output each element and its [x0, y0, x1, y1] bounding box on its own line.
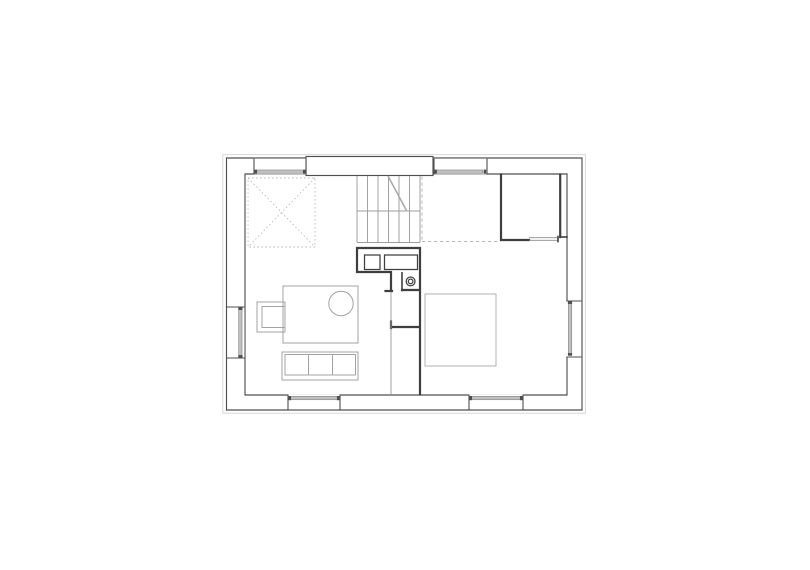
double-bed	[425, 294, 496, 366]
windows	[227, 159, 582, 410]
round-table	[329, 291, 353, 315]
window-top-left	[254, 159, 306, 175]
service-core	[357, 248, 420, 394]
closet-door-threshold	[529, 238, 558, 241]
void-cross-square	[248, 178, 315, 247]
exterior-walls	[227, 157, 583, 411]
shower-square	[365, 255, 381, 270]
sofa-cushion-dividers	[309, 355, 333, 376]
window-bottom-right	[469, 394, 523, 410]
top-wall-pier	[306, 157, 433, 176]
floor-plan-canvas	[0, 0, 810, 570]
window-bottom-left	[288, 394, 340, 410]
armchair	[257, 302, 285, 332]
furniture	[257, 286, 496, 380]
closet-walls	[501, 175, 529, 241]
sofa	[282, 352, 358, 380]
stair-treads	[357, 176, 420, 243]
void-opening-dashed	[422, 177, 501, 242]
eaves-outline	[223, 155, 586, 414]
counter	[385, 255, 418, 270]
wall-band	[227, 158, 583, 410]
staircase	[357, 176, 501, 243]
window-right	[566, 301, 582, 357]
void-cross-diagonals	[248, 178, 315, 247]
window-top-right	[434, 159, 487, 175]
window-left	[227, 307, 245, 358]
toilet-basin	[406, 277, 415, 286]
stair-break-line	[388, 176, 407, 211]
closet-room	[501, 175, 567, 242]
